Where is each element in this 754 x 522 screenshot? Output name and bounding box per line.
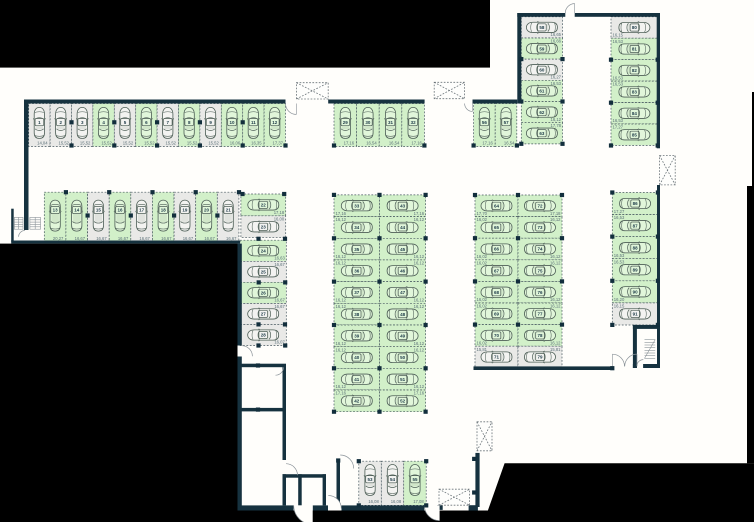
- svg-text:23: 23: [261, 225, 267, 230]
- svg-text:74: 74: [537, 247, 543, 252]
- svg-text:15,52: 15,52: [144, 141, 155, 146]
- svg-text:89: 89: [633, 267, 639, 272]
- svg-text:16,12: 16,12: [550, 217, 561, 222]
- svg-text:16,00: 16,00: [274, 216, 285, 221]
- svg-text:10: 10: [229, 120, 235, 125]
- svg-text:19: 19: [182, 208, 188, 213]
- svg-text:16: 16: [117, 208, 123, 213]
- svg-text:50: 50: [400, 355, 406, 360]
- svg-text:16,08: 16,08: [368, 499, 379, 504]
- svg-text:32: 32: [411, 120, 417, 125]
- svg-text:16,06: 16,06: [230, 141, 241, 146]
- svg-text:16,02: 16,02: [477, 297, 488, 302]
- svg-text:16,53: 16,53: [614, 259, 625, 264]
- svg-text:16,12: 16,12: [550, 297, 561, 302]
- svg-text:30: 30: [365, 120, 371, 125]
- svg-text:73: 73: [537, 225, 543, 230]
- svg-text:16,53: 16,53: [613, 118, 624, 123]
- svg-text:55: 55: [412, 477, 418, 482]
- svg-text:16,12: 16,12: [551, 117, 562, 122]
- svg-text:75: 75: [537, 268, 543, 273]
- svg-text:17,18: 17,18: [550, 211, 561, 216]
- svg-text:38: 38: [354, 312, 360, 317]
- svg-text:16,02: 16,02: [477, 260, 488, 265]
- svg-text:58: 58: [539, 25, 545, 30]
- svg-text:28: 28: [261, 333, 267, 338]
- svg-text:14,04: 14,04: [37, 141, 48, 146]
- svg-text:46: 46: [400, 269, 406, 274]
- svg-text:33: 33: [354, 203, 360, 208]
- svg-text:16,53: 16,53: [614, 253, 625, 258]
- svg-text:17,18: 17,18: [274, 210, 285, 215]
- svg-text:17,16: 17,16: [414, 391, 425, 396]
- svg-text:67: 67: [494, 268, 500, 273]
- svg-text:16,02: 16,02: [477, 340, 488, 345]
- svg-text:17: 17: [139, 208, 145, 213]
- svg-text:16,53: 16,53: [613, 39, 624, 44]
- svg-text:57: 57: [504, 120, 510, 125]
- svg-text:16,12: 16,12: [414, 254, 425, 259]
- svg-text:31: 31: [388, 120, 394, 125]
- svg-text:16,12: 16,12: [414, 384, 425, 389]
- svg-text:16,02: 16,02: [477, 217, 488, 222]
- svg-text:16,12: 16,12: [336, 341, 347, 346]
- svg-text:16,12: 16,12: [414, 347, 425, 352]
- svg-text:84: 84: [632, 111, 638, 116]
- svg-text:17,16: 17,16: [336, 391, 347, 396]
- svg-text:16,12: 16,12: [336, 298, 347, 303]
- svg-text:16,53: 16,53: [613, 82, 624, 87]
- svg-text:49: 49: [400, 334, 406, 339]
- svg-text:22: 22: [261, 203, 267, 208]
- svg-text:80: 80: [632, 25, 638, 30]
- svg-text:42: 42: [354, 399, 360, 404]
- svg-text:16,12: 16,12: [550, 254, 561, 259]
- svg-text:16,12: 16,12: [414, 261, 425, 266]
- svg-text:16,54: 16,54: [504, 141, 515, 146]
- svg-text:16,12: 16,12: [336, 217, 347, 222]
- svg-text:15: 15: [96, 208, 102, 213]
- svg-text:16,12: 16,12: [414, 217, 425, 222]
- svg-text:15,81: 15,81: [550, 347, 561, 352]
- svg-text:12: 12: [272, 120, 278, 125]
- svg-text:16,65: 16,65: [551, 32, 562, 37]
- svg-text:17,37: 17,37: [273, 141, 284, 146]
- svg-text:17,70: 17,70: [477, 211, 488, 216]
- svg-text:63: 63: [539, 131, 545, 136]
- svg-text:79: 79: [537, 355, 543, 360]
- svg-text:69: 69: [494, 312, 500, 317]
- svg-text:18: 18: [161, 208, 167, 213]
- svg-text:16,67: 16,67: [183, 236, 194, 241]
- svg-text:83: 83: [632, 90, 638, 95]
- svg-text:43: 43: [400, 203, 406, 208]
- svg-text:34: 34: [354, 225, 360, 230]
- svg-text:82: 82: [632, 68, 638, 73]
- svg-text:90: 90: [633, 290, 639, 295]
- svg-text:51: 51: [400, 377, 406, 382]
- svg-text:16,67: 16,67: [274, 298, 285, 303]
- svg-text:41: 41: [354, 377, 360, 382]
- svg-text:76: 76: [537, 290, 543, 295]
- svg-text:16,08: 16,08: [391, 499, 402, 504]
- svg-text:21: 21: [226, 208, 232, 213]
- svg-text:40: 40: [354, 355, 360, 360]
- svg-text:16,12: 16,12: [336, 384, 347, 389]
- svg-text:61: 61: [539, 89, 545, 94]
- svg-text:53: 53: [367, 477, 373, 482]
- svg-text:70: 70: [494, 333, 500, 338]
- svg-text:47: 47: [400, 290, 406, 295]
- svg-text:91: 91: [633, 312, 639, 317]
- svg-text:16,67: 16,67: [204, 236, 215, 241]
- svg-text:16,15: 16,15: [614, 304, 625, 309]
- svg-text:71: 71: [494, 355, 500, 360]
- svg-text:65: 65: [494, 225, 500, 230]
- svg-text:16,53: 16,53: [613, 75, 624, 80]
- svg-text:87: 87: [633, 223, 639, 228]
- svg-text:85: 85: [632, 133, 638, 138]
- svg-text:17,08: 17,08: [413, 499, 424, 504]
- svg-text:16,12: 16,12: [336, 347, 347, 352]
- svg-text:15,52: 15,52: [123, 141, 134, 146]
- svg-text:11: 11: [251, 120, 256, 125]
- svg-text:20,27: 20,27: [53, 236, 64, 241]
- svg-text:16,63: 16,63: [274, 256, 285, 261]
- svg-text:35: 35: [354, 247, 360, 252]
- svg-text:27: 27: [261, 312, 267, 317]
- svg-text:14: 14: [74, 208, 80, 213]
- svg-text:37: 37: [354, 290, 360, 295]
- svg-text:17,27: 17,27: [614, 209, 625, 214]
- svg-text:15,52: 15,52: [80, 141, 91, 146]
- svg-text:39: 39: [354, 334, 360, 339]
- svg-text:13: 13: [53, 208, 59, 213]
- svg-text:16,67: 16,67: [118, 236, 129, 241]
- svg-text:29: 29: [343, 120, 349, 125]
- svg-text:68: 68: [494, 290, 500, 295]
- svg-text:16,12: 16,12: [336, 261, 347, 266]
- svg-text:16,12: 16,12: [550, 260, 561, 265]
- svg-text:16,67: 16,67: [96, 236, 107, 241]
- svg-text:20: 20: [204, 208, 210, 213]
- svg-text:16,53: 16,53: [551, 81, 562, 86]
- svg-text:16,12: 16,12: [550, 340, 561, 345]
- svg-text:66: 66: [494, 247, 500, 252]
- svg-text:16,66: 16,66: [551, 39, 562, 44]
- svg-text:17,16: 17,16: [336, 211, 347, 216]
- svg-text:15,52: 15,52: [208, 141, 219, 146]
- svg-text:17,16: 17,16: [414, 211, 425, 216]
- svg-text:16,67: 16,67: [139, 236, 150, 241]
- svg-text:16,12: 16,12: [336, 254, 347, 259]
- svg-text:16,67: 16,67: [274, 262, 285, 267]
- svg-text:60: 60: [539, 67, 545, 72]
- svg-text:16,02: 16,02: [477, 304, 488, 309]
- svg-text:15,52: 15,52: [187, 141, 198, 146]
- svg-text:24: 24: [261, 248, 267, 253]
- svg-text:16,35: 16,35: [251, 141, 262, 146]
- svg-text:16,54: 16,54: [366, 141, 377, 146]
- svg-text:44: 44: [400, 225, 406, 230]
- svg-text:16,27: 16,27: [551, 75, 562, 80]
- svg-text:26: 26: [261, 291, 267, 296]
- svg-text:17,16: 17,16: [411, 141, 422, 146]
- svg-text:52: 52: [400, 399, 406, 404]
- svg-text:56: 56: [482, 120, 488, 125]
- svg-text:25: 25: [261, 270, 267, 275]
- svg-text:72: 72: [537, 204, 543, 209]
- svg-text:16,67: 16,67: [75, 236, 86, 241]
- svg-text:16,02: 16,02: [477, 254, 488, 259]
- svg-text:17,78: 17,78: [551, 123, 562, 128]
- svg-text:16,12: 16,12: [336, 304, 347, 309]
- svg-text:77: 77: [537, 312, 543, 317]
- svg-text:16,12: 16,12: [414, 298, 425, 303]
- svg-text:17,27: 17,27: [613, 125, 624, 130]
- svg-text:16,53: 16,53: [614, 215, 625, 220]
- svg-text:15,52: 15,52: [101, 141, 112, 146]
- svg-text:16,67: 16,67: [274, 304, 285, 309]
- svg-text:17,16: 17,16: [482, 141, 493, 146]
- svg-text:16,15: 16,15: [613, 33, 624, 38]
- svg-text:16,12: 16,12: [550, 304, 561, 309]
- svg-text:62: 62: [539, 110, 545, 115]
- svg-text:16,67: 16,67: [161, 236, 172, 241]
- svg-text:78: 78: [537, 333, 543, 338]
- svg-text:15,52: 15,52: [59, 141, 70, 146]
- svg-text:45: 45: [400, 247, 406, 252]
- svg-text:15,52: 15,52: [166, 141, 177, 146]
- svg-text:64: 64: [494, 204, 500, 209]
- svg-text:59: 59: [539, 46, 545, 51]
- svg-text:48: 48: [400, 312, 406, 317]
- svg-text:15,81: 15,81: [477, 347, 488, 352]
- svg-text:36: 36: [354, 269, 360, 274]
- svg-text:86: 86: [633, 201, 639, 206]
- svg-text:16,20: 16,20: [614, 297, 625, 302]
- svg-text:88: 88: [633, 245, 639, 250]
- svg-text:81: 81: [632, 47, 638, 52]
- svg-text:17,16: 17,16: [344, 141, 355, 146]
- svg-text:16,12: 16,12: [414, 304, 425, 309]
- svg-text:16,67: 16,67: [226, 236, 237, 241]
- svg-text:16,12: 16,12: [414, 341, 425, 346]
- svg-text:54: 54: [390, 477, 396, 482]
- svg-text:16,54: 16,54: [389, 141, 400, 146]
